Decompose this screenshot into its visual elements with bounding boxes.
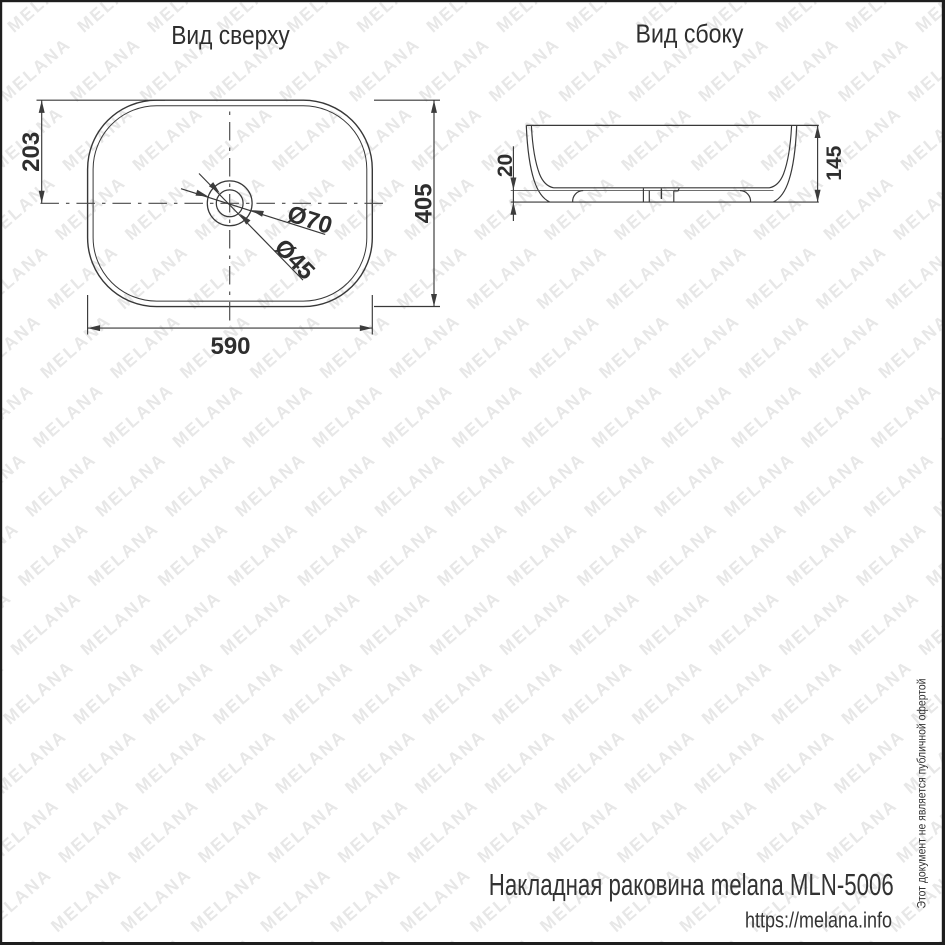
- svg-text:590: 590: [210, 333, 250, 360]
- svg-text:Накладная раковина melana MLN-: Накладная раковина melana MLN-5006: [489, 867, 894, 902]
- svg-text:405: 405: [411, 183, 438, 223]
- svg-text:Этот документ не является публ: Этот документ не является публичной офер…: [914, 679, 928, 909]
- svg-text:145: 145: [823, 145, 846, 180]
- svg-text:Вид сбоку: Вид сбоку: [636, 20, 744, 48]
- svg-text:Вид сверху: Вид сверху: [171, 22, 290, 50]
- svg-text:203: 203: [18, 132, 45, 172]
- svg-text:20: 20: [494, 154, 517, 177]
- svg-text:https://melana.info: https://melana.info: [745, 908, 892, 933]
